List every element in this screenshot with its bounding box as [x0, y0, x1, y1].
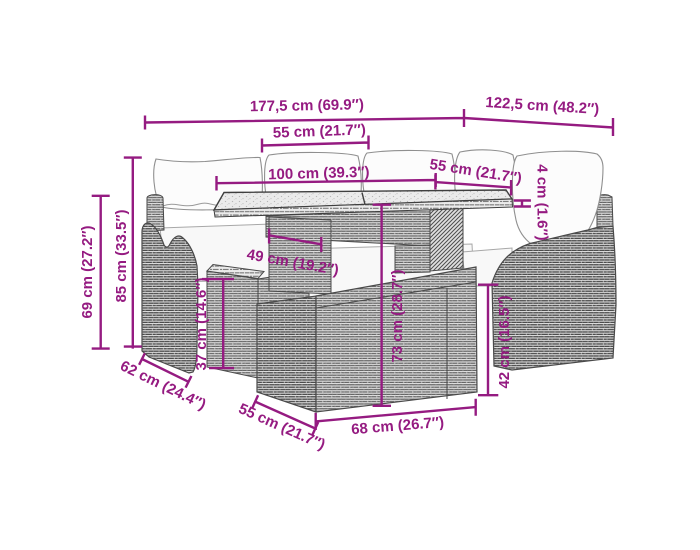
svg-text:55 cm (21.7″): 55 cm (21.7″) [273, 121, 367, 141]
svg-text:85 cm (33.5″): 85 cm (33.5″) [113, 209, 130, 302]
svg-text:73 cm (28.7″): 73 cm (28.7″) [389, 269, 406, 362]
svg-text:69 cm (27.2″): 69 cm (27.2″) [79, 225, 96, 318]
svg-text:177,5 cm (69.9″): 177,5 cm (69.9″) [250, 96, 364, 115]
svg-text:100 cm (39.3″): 100 cm (39.3″) [268, 164, 370, 184]
svg-text:42 cm (16.5″): 42 cm (16.5″) [496, 295, 513, 388]
svg-text:4 cm (1.6″): 4 cm (1.6″) [534, 164, 551, 240]
svg-text:37 cm (14.6″): 37 cm (14.6″) [193, 277, 210, 370]
